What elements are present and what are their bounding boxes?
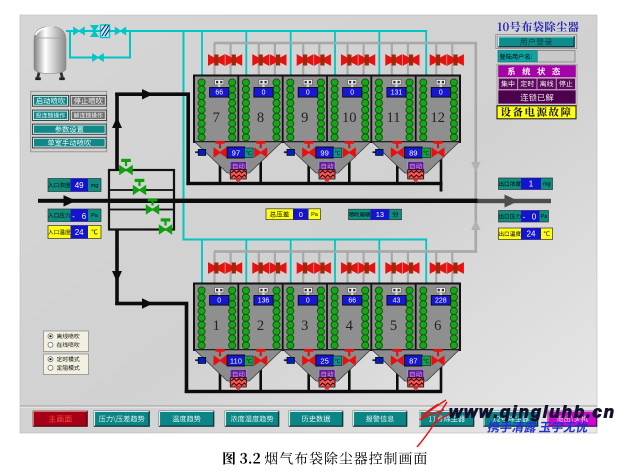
svg-text:Pa: Pa	[311, 212, 319, 218]
svg-text:24: 24	[75, 228, 84, 237]
svg-text:66: 66	[215, 90, 223, 97]
svg-text:7: 7	[213, 110, 220, 126]
svg-text:11: 11	[387, 110, 401, 126]
svg-text:131: 131	[391, 90, 403, 97]
svg-text:0: 0	[217, 298, 221, 305]
svg-text:228: 228	[435, 298, 447, 305]
svg-text:66: 66	[348, 298, 356, 305]
svg-text:13: 13	[376, 210, 384, 219]
svg-text:8: 8	[257, 110, 264, 126]
svg-text:24: 24	[527, 230, 536, 239]
svg-text:136: 136	[258, 298, 270, 305]
svg-text:0: 0	[306, 298, 310, 305]
svg-text:99: 99	[320, 148, 328, 157]
svg-text:0: 0	[532, 213, 537, 222]
svg-text:87: 87	[409, 356, 417, 365]
svg-text:6: 6	[82, 212, 87, 221]
svg-text:www.qingluhb.cn: www.qingluhb.cn	[449, 403, 614, 422]
svg-text:mg: mg	[91, 183, 99, 189]
svg-text:-: -	[72, 212, 75, 221]
svg-text:5: 5	[390, 318, 397, 334]
svg-text:12: 12	[431, 110, 446, 126]
svg-text:89: 89	[409, 148, 417, 157]
svg-text:Pa: Pa	[91, 213, 99, 219]
svg-text:4: 4	[346, 318, 354, 334]
svg-text:49: 49	[75, 181, 84, 190]
svg-text:0: 0	[262, 90, 266, 97]
svg-text:Pa: Pa	[541, 214, 549, 220]
svg-text:25: 25	[320, 356, 328, 365]
svg-text:1: 1	[529, 180, 534, 189]
svg-text:9: 9	[301, 110, 308, 126]
svg-text:97: 97	[232, 148, 240, 157]
svg-text:-: -	[523, 213, 526, 222]
svg-text:1: 1	[213, 318, 220, 334]
svg-text:mg: mg	[543, 182, 551, 188]
svg-text:43: 43	[393, 298, 401, 305]
svg-text:0: 0	[439, 90, 443, 97]
svg-text:0: 0	[350, 90, 354, 97]
svg-text:6: 6	[434, 318, 441, 334]
svg-text:0: 0	[299, 210, 303, 219]
svg-text:110: 110	[230, 356, 242, 365]
svg-text:0: 0	[306, 90, 310, 97]
svg-text:10: 10	[342, 110, 357, 126]
svg-text:2: 2	[257, 318, 264, 334]
svg-text:3: 3	[301, 318, 308, 334]
